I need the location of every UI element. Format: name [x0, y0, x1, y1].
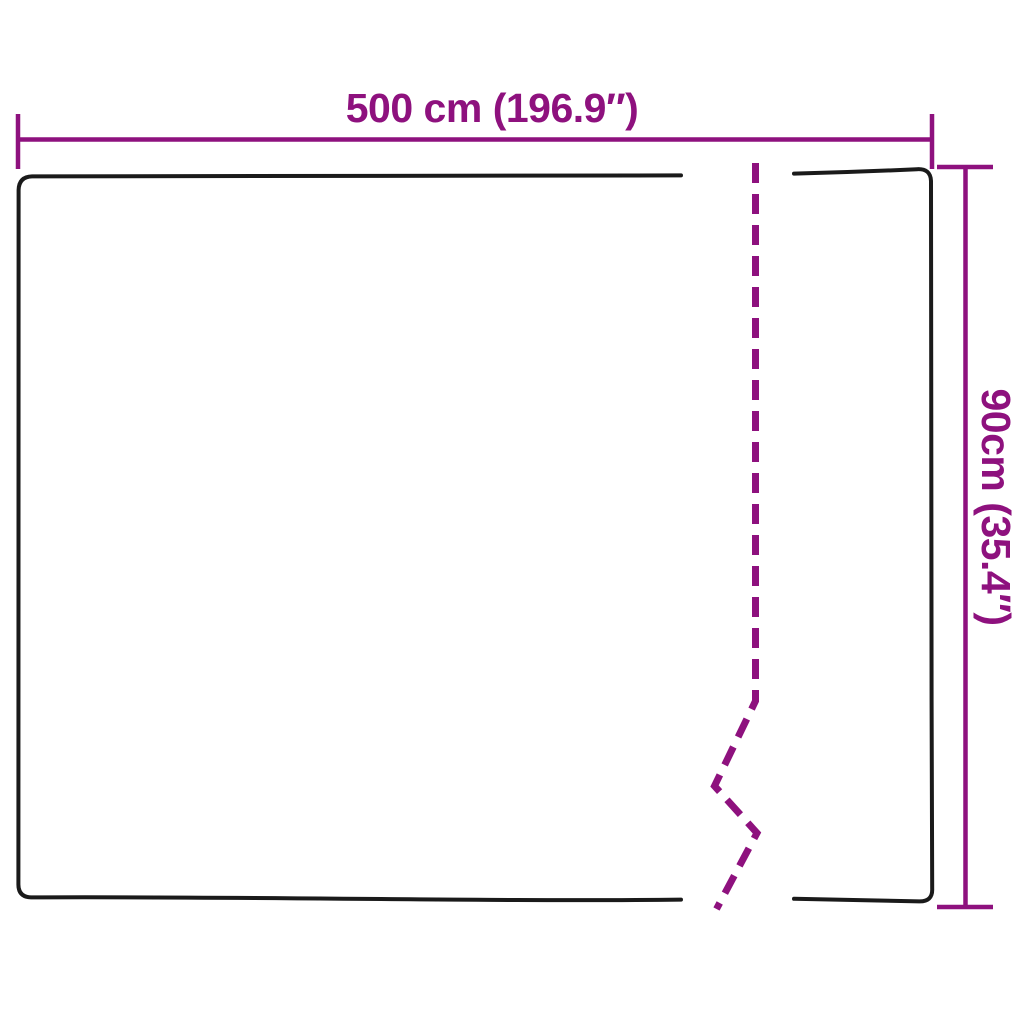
- product-dimension-diagram: 500 cm (196.9″) 90cm (35.4″): [0, 0, 1024, 1024]
- diagram-drawing: [0, 0, 1024, 1024]
- fold-dashed-line: [715, 163, 758, 909]
- product-outline-right-part: [794, 169, 932, 901]
- height-dimension-label: 90cm (35.4″): [974, 389, 1018, 626]
- width-dimension-label: 500 cm (196.9″): [35, 86, 949, 130]
- product-outline: [18, 169, 932, 901]
- fold-dashed-path: [715, 163, 758, 909]
- product-outline-left-part: [18, 175, 681, 900]
